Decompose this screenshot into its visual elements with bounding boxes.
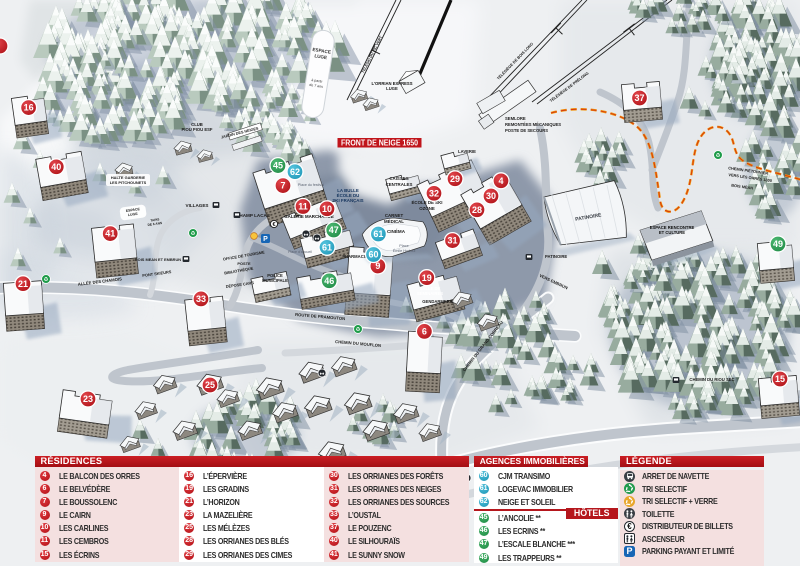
svg-text:4: 4 — [498, 176, 503, 186]
svg-text:46: 46 — [324, 276, 334, 286]
svg-text:ET CULTURE: ET CULTURE — [659, 230, 685, 235]
svg-text:FRONT DE NEIGE 1650: FRONT DE NEIGE 1650 — [341, 139, 418, 148]
svg-text:CARNET: CARNET — [385, 213, 404, 218]
svg-text:40: 40 — [51, 162, 61, 172]
svg-text:LES PITCHOUNETS: LES PITCHOUNETS — [110, 180, 147, 185]
svg-text:47: 47 — [329, 225, 339, 235]
svg-text:60: 60 — [368, 250, 378, 260]
svg-text:♦♦: ♦♦ — [304, 232, 309, 237]
svg-text:30: 30 — [486, 191, 496, 201]
svg-text:PATINOIRE: PATINOIRE — [545, 254, 567, 259]
svg-text:25: 25 — [205, 380, 215, 390]
svg-text:CAISSES: CAISSES — [389, 176, 408, 181]
svg-text:Place du festival: Place du festival — [298, 183, 324, 187]
svg-text:CHAMP LACAS: CHAMP LACAS — [236, 213, 270, 218]
svg-text:CINÉMA: CINÉMA — [387, 227, 406, 234]
svg-text:29: 29 — [450, 174, 460, 184]
svg-text:REMONTÉES MÉCANIQUES: REMONTÉES MÉCANIQUES — [505, 122, 561, 127]
svg-text:37: 37 — [634, 93, 644, 103]
svg-text:MÉDICAL: MÉDICAL — [384, 219, 404, 224]
svg-text:Place: Place — [399, 244, 409, 248]
svg-text:LUGE: LUGE — [386, 86, 398, 91]
svg-text:PHARMACIE: PHARMACIE — [342, 254, 368, 259]
svg-text:Place d'accueil: Place d'accueil — [288, 250, 312, 254]
svg-text:SKI FRANÇAIS: SKI FRANÇAIS — [332, 198, 363, 203]
svg-text:11: 11 — [298, 202, 308, 212]
svg-text:7: 7 — [280, 181, 285, 191]
svg-text:OZONE: OZONE — [419, 206, 435, 211]
svg-text:SEMLORE: SEMLORE — [505, 116, 526, 121]
svg-text:BOIS MEAN ET EMBRUN: BOIS MEAN ET EMBRUN — [135, 257, 181, 262]
svg-text:P: P — [263, 236, 268, 243]
svg-text:Émile Hodoul: Émile Hodoul — [393, 248, 416, 253]
svg-text:CENTRALES: CENTRALES — [386, 182, 413, 187]
svg-text:21: 21 — [18, 279, 28, 289]
svg-text:♻: ♻ — [44, 276, 49, 283]
svg-text:LAVERIE: LAVERIE — [458, 149, 476, 154]
svg-text:49: 49 — [773, 239, 783, 249]
svg-text:31: 31 — [447, 236, 457, 246]
svg-text:10: 10 — [322, 204, 332, 214]
svg-text:33: 33 — [196, 294, 206, 304]
svg-text:♦♦: ♦♦ — [315, 236, 320, 241]
svg-text:POSTE DE SECOURS: POSTE DE SECOURS — [505, 128, 548, 133]
svg-text:19: 19 — [422, 273, 432, 283]
svg-text:32: 32 — [429, 188, 439, 198]
svg-text:CHEMIN DU RIOU SEC: CHEMIN DU RIOU SEC — [689, 377, 734, 382]
svg-text:41: 41 — [105, 229, 115, 239]
svg-text:15: 15 — [775, 374, 785, 384]
svg-text:28: 28 — [472, 205, 482, 215]
svg-text:23: 23 — [83, 394, 93, 404]
svg-text:16: 16 — [24, 103, 34, 113]
svg-text:♻: ♻ — [356, 326, 361, 333]
svg-text:6: 6 — [422, 327, 427, 337]
svg-text:61: 61 — [373, 229, 383, 239]
svg-text:♦♦: ♦♦ — [320, 371, 325, 376]
svg-text:62: 62 — [290, 167, 300, 177]
svg-text:PIOU PIOU ESF: PIOU PIOU ESF — [182, 127, 213, 132]
svg-text:SÉMINAIRES: SÉMINAIRES — [417, 291, 443, 296]
svg-text:GENDARMERIE: GENDARMERIE — [422, 299, 454, 304]
svg-text:45: 45 — [273, 161, 283, 171]
svg-text:♻: ♻ — [191, 230, 196, 237]
svg-text:♻: ♻ — [716, 152, 721, 159]
svg-text:VILLAGES: VILLAGES — [186, 203, 209, 208]
svg-text:MUNICIPALE: MUNICIPALE — [262, 278, 288, 283]
svg-text:61: 61 — [322, 242, 332, 252]
